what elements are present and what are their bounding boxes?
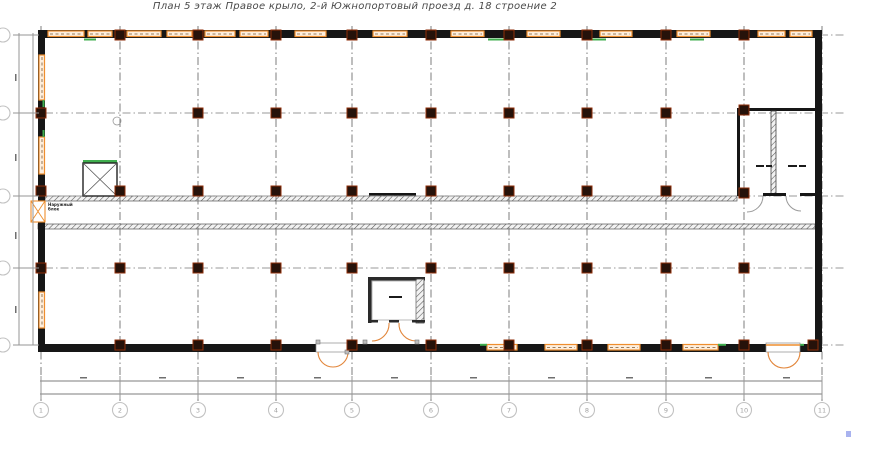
column xyxy=(115,263,125,273)
blue-artifact-dot xyxy=(846,431,851,437)
dimension-text-mark xyxy=(470,377,477,379)
door-post xyxy=(363,340,367,344)
shaft-wall-hatch xyxy=(416,279,424,323)
grid-bubble-label: 2 xyxy=(118,406,122,414)
dimension-text-mark xyxy=(314,377,321,379)
column xyxy=(582,108,592,118)
grid-bubble-label: 11 xyxy=(818,406,826,414)
column xyxy=(582,30,592,40)
dimension-text-mark xyxy=(15,306,17,313)
column xyxy=(739,188,749,198)
column xyxy=(808,340,818,350)
grid-bubble-left xyxy=(0,189,10,203)
grid-bubble-label: 1 xyxy=(39,406,43,414)
room-label xyxy=(799,165,806,167)
room-label xyxy=(788,165,797,167)
column xyxy=(661,186,671,196)
grid-bubble-left xyxy=(0,28,10,42)
column xyxy=(739,30,749,40)
grid-bubble-label: 10 xyxy=(740,406,748,414)
outer-wall xyxy=(815,30,822,352)
dimension-text-mark xyxy=(783,377,790,379)
outdoor-unit-label: блок xyxy=(48,207,59,212)
floor-plan-svg: Наружныйблок1234567891011 xyxy=(0,0,881,473)
column xyxy=(271,108,281,118)
shaft-label xyxy=(389,296,402,298)
column xyxy=(582,186,592,196)
column xyxy=(193,108,203,118)
grid-bubble-left xyxy=(0,106,10,120)
grid-bubble-label: 5 xyxy=(350,406,354,414)
column xyxy=(426,340,436,350)
shaft-wall xyxy=(412,320,425,323)
grid-bubble-left xyxy=(0,338,10,352)
grid-bubble-label: 8 xyxy=(585,406,589,414)
column xyxy=(271,340,281,350)
column xyxy=(193,30,203,40)
column xyxy=(661,263,671,273)
column xyxy=(426,263,436,273)
column xyxy=(347,108,357,118)
column xyxy=(115,340,125,350)
dimension-text-mark xyxy=(391,377,398,379)
grid-bubble-label: 9 xyxy=(664,406,668,414)
column xyxy=(426,108,436,118)
column xyxy=(661,30,671,40)
window-top xyxy=(373,31,407,37)
dimension-text-mark xyxy=(15,232,17,239)
grid-bubble-label: 7 xyxy=(507,406,511,414)
column xyxy=(193,186,203,196)
column xyxy=(271,186,281,196)
dimension-text-mark xyxy=(80,377,87,379)
room-wall xyxy=(737,108,740,196)
shaft-wall xyxy=(389,320,399,323)
column xyxy=(271,263,281,273)
dimension-text-mark xyxy=(159,377,166,379)
grid-bubble-left xyxy=(0,261,10,275)
corridor-beam xyxy=(369,193,416,196)
column xyxy=(193,340,203,350)
column xyxy=(271,30,281,40)
window-top xyxy=(127,31,161,37)
grid-bubble-label: 6 xyxy=(429,406,433,414)
drawing-sheet: План 5 этаж Правое крыло, 2-й Южнопортов… xyxy=(0,0,881,473)
dimension-text-mark xyxy=(548,377,555,379)
column xyxy=(739,340,749,350)
room-wall xyxy=(800,193,815,196)
column xyxy=(193,263,203,273)
column xyxy=(36,186,46,196)
shaft-door-arc xyxy=(372,323,389,341)
door-swing-arc xyxy=(318,352,333,367)
shaft-wall xyxy=(368,277,372,323)
column xyxy=(504,340,514,350)
door-swing-arc xyxy=(768,352,784,368)
column xyxy=(504,186,514,196)
dimension-text-mark xyxy=(626,377,633,379)
room-door-arc xyxy=(786,196,801,211)
column xyxy=(582,263,592,273)
door-post xyxy=(345,350,349,354)
room-wall xyxy=(763,193,786,196)
column xyxy=(426,30,436,40)
room-label xyxy=(766,165,772,167)
column xyxy=(739,105,749,115)
corridor-wall-hatch xyxy=(45,196,737,201)
room-label xyxy=(756,165,764,167)
column xyxy=(582,340,592,350)
window-left xyxy=(39,55,45,100)
dimension-text-mark xyxy=(705,377,712,379)
grid-bubble-label: 3 xyxy=(196,406,200,414)
column xyxy=(504,263,514,273)
door-post xyxy=(316,340,320,344)
column xyxy=(347,186,357,196)
column xyxy=(504,108,514,118)
column xyxy=(739,263,749,273)
dimension-text-mark xyxy=(237,377,244,379)
column xyxy=(661,340,671,350)
column xyxy=(347,30,357,40)
dimension-text-mark xyxy=(15,74,17,81)
column xyxy=(661,108,671,118)
shaft-door-arc xyxy=(399,323,416,341)
room-divider-wall xyxy=(771,111,776,194)
column xyxy=(504,30,514,40)
door-swing-arc xyxy=(784,352,800,368)
shaft-wall xyxy=(368,320,378,323)
corridor-wall-hatch xyxy=(38,224,815,229)
column xyxy=(115,30,125,40)
door-opening xyxy=(316,343,348,352)
column xyxy=(426,186,436,196)
column xyxy=(115,186,125,196)
door-post xyxy=(415,340,419,344)
column xyxy=(347,263,357,273)
dimension-text-mark xyxy=(15,154,17,161)
grid-bubble-label: 4 xyxy=(274,406,278,414)
column xyxy=(347,340,357,350)
